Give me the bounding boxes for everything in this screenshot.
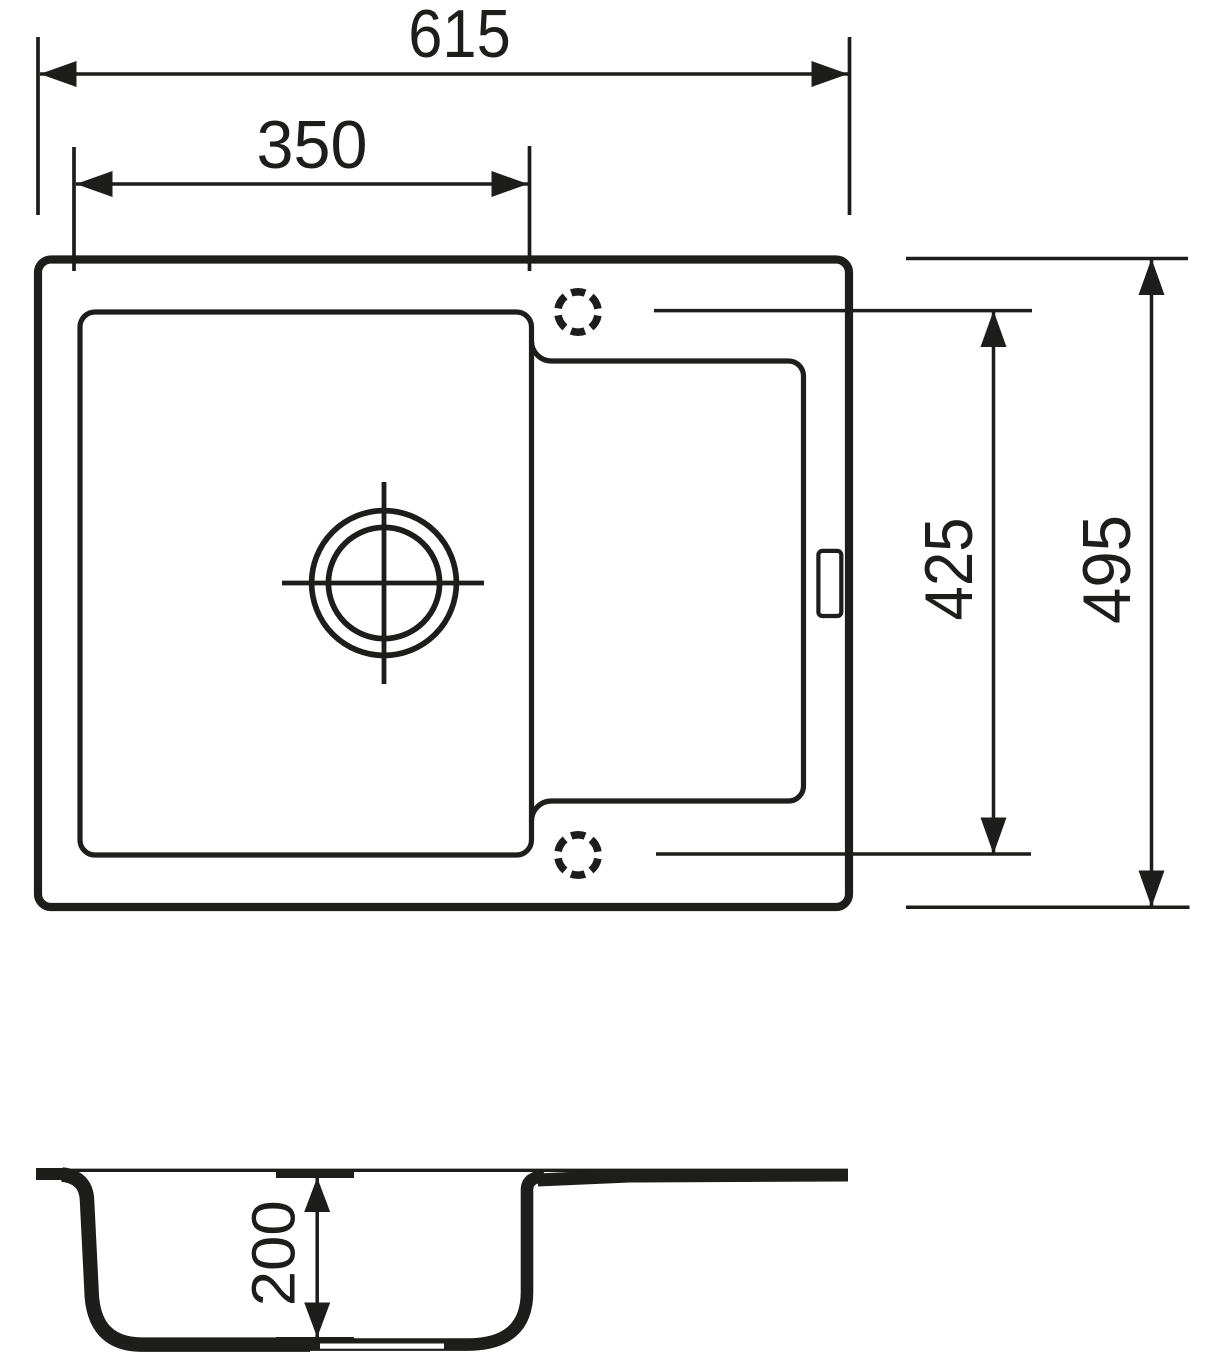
svg-text:495: 495 [1069,515,1145,624]
svg-text:200: 200 [240,1200,308,1306]
svg-text:350: 350 [257,107,368,183]
svg-text:615: 615 [408,0,511,72]
svg-text:425: 425 [911,518,987,621]
